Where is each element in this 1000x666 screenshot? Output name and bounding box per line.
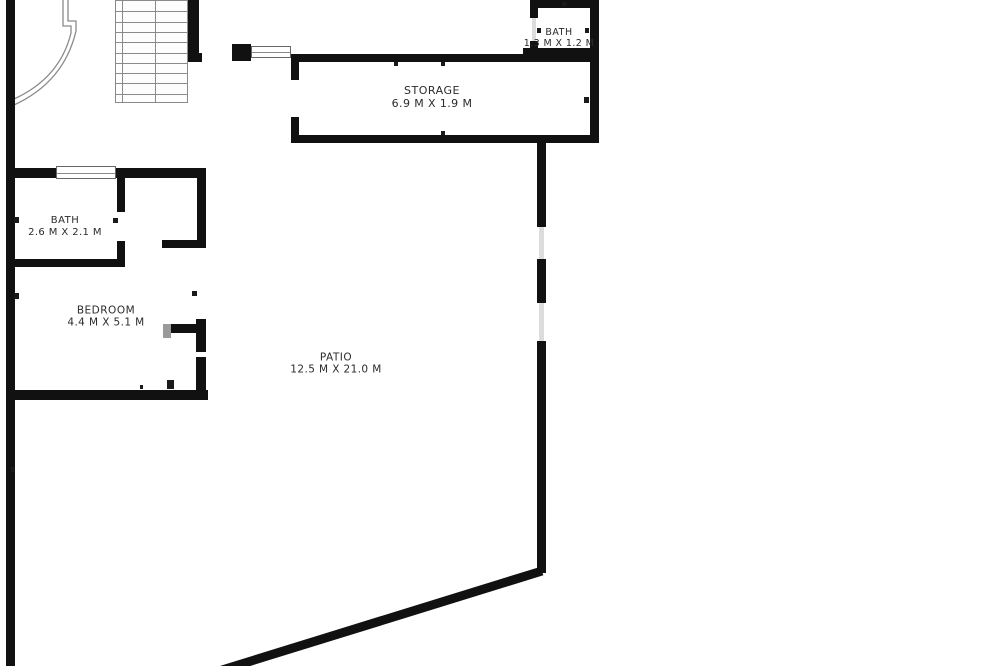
outer-wall-left [6, 0, 15, 666]
room-dimensions: 12.5 M X 21.0 M [290, 364, 381, 376]
jamb-tick [11, 467, 15, 472]
stair-tread-line [116, 42, 187, 43]
room-label-bath-top: BATH1.3 M X 1.2 M [524, 27, 594, 49]
patio-right-wall-middle [537, 259, 546, 303]
room-dimensions: 6.9 M X 1.9 M [392, 98, 473, 111]
jamb-tick [192, 291, 197, 296]
jamb-tick [394, 62, 398, 66]
jamb-tick [14, 293, 19, 299]
curved-wall-inner-line [14, 0, 71, 99]
window-bath-bedroom [56, 166, 116, 179]
curved-wall-outer-line [14, 0, 76, 105]
stair-edge-line [122, 1, 123, 102]
bedroom-bottom-wall [6, 390, 208, 400]
room-name: BATH [28, 215, 102, 227]
room-dimensions: 2.6 M X 2.1 M [28, 227, 102, 239]
patio-door-right-wall-upper [196, 319, 206, 352]
patio-wall-opening-2 [539, 303, 544, 341]
jamb-tick [562, 2, 567, 6]
bath-bottom-wall [6, 259, 124, 267]
room-label-storage: STORAGE6.9 M X 1.9 M [392, 85, 473, 111]
jamb-tick [167, 380, 174, 389]
stair-tread-line [116, 94, 187, 95]
stairs-right-wall-foot [188, 53, 202, 62]
room-name: BATH [524, 27, 594, 38]
stair-divider-line [155, 1, 156, 102]
staircase [115, 0, 188, 103]
patio-diagonal-wall [222, 571, 542, 666]
room-dimensions: 4.4 M X 5.1 M [67, 317, 144, 329]
jamb-tick [113, 218, 118, 223]
stair-tread-line [116, 73, 187, 74]
window-glass-line [252, 52, 290, 53]
top-bath-left-wall-upper [530, 8, 538, 18]
room-name: BEDROOM [67, 305, 144, 317]
storage-left-wall-lower [291, 117, 299, 137]
window-entry [251, 46, 291, 58]
stair-tread-line [116, 22, 187, 23]
storage-left-wall-upper [291, 62, 299, 80]
outer-wall-right [590, 0, 599, 143]
closet-stub-wall [162, 240, 206, 248]
patio-right-wall-lower [537, 341, 546, 573]
room-name: PATIO [290, 352, 381, 364]
floorplan: BATH1.3 M X 1.2 MSTORAGE6.9 M X 1.9 MBAT… [0, 0, 1000, 666]
storage-bottom-wall [291, 135, 599, 143]
stair-tread-line [116, 63, 187, 64]
bath-right-wall-upper [117, 178, 125, 212]
patio-door-jamb-gray [163, 324, 171, 338]
bedroom-right-wall [197, 168, 206, 248]
jamb-tick [441, 131, 445, 135]
stairs-right-wall [188, 0, 199, 55]
room-label-bath: BATH2.6 M X 2.1 M [28, 215, 102, 239]
stair-tread-line [116, 32, 187, 33]
room-label-bedroom: BEDROOM4.4 M X 5.1 M [67, 305, 144, 330]
window-glass-line [57, 173, 115, 174]
jamb-tick [584, 97, 589, 103]
patio-wall-opening-1 [539, 227, 544, 259]
stair-tread-line [116, 53, 187, 54]
jamb-tick [14, 217, 19, 223]
patio-door-jamb-top [168, 324, 197, 333]
entry-pier [232, 44, 251, 61]
stair-tread-line [116, 11, 187, 12]
room-label-patio: PATIO12.5 M X 21.0 M [290, 352, 381, 377]
stair-tread-line [116, 83, 187, 84]
patio-right-wall-upper [537, 143, 546, 227]
jamb-tick [441, 62, 445, 66]
jamb-tick [140, 385, 143, 389]
room-dimensions: 1.3 M X 1.2 M [524, 38, 594, 49]
